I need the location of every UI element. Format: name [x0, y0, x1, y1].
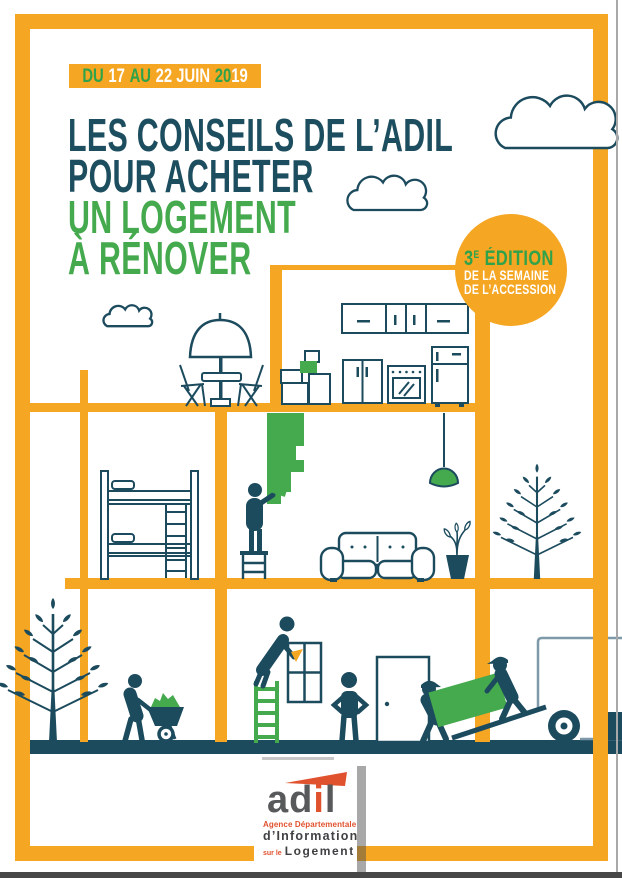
- kitchen: [342, 304, 468, 407]
- ladder-figure: [256, 617, 321, 744]
- beam-top-thin: [276, 265, 458, 270]
- date-badge-text: DU 17 AU 22 JUIN 20 19: [82, 67, 247, 86]
- green-box-small: [300, 361, 317, 373]
- wheelbarrow-load: [151, 693, 180, 707]
- ground: [30, 740, 622, 754]
- potted-plant: [443, 521, 472, 579]
- logo-subline-1: Agence Départementale: [263, 820, 356, 829]
- pendant-lamp: [430, 413, 458, 487]
- umbrella-base: [211, 399, 230, 406]
- logo-wordmark: adil: [267, 781, 336, 819]
- pillow-bottom: [112, 534, 134, 542]
- door-knob: [385, 702, 389, 706]
- date-seg: 17: [108, 67, 124, 86]
- date-badge: DU 17 AU 22 JUIN 20 19: [69, 64, 261, 88]
- cap-right-mover: [487, 657, 508, 664]
- fridge: [432, 347, 468, 407]
- edition-line-3: DE L’ACCESSION: [464, 283, 556, 297]
- terrace-umbrella-table: [180, 313, 263, 406]
- date-seg: 19: [231, 67, 247, 86]
- logo-plate-shadow: [357, 766, 366, 878]
- poster-page: DU 17 AU 22 JUIN 20 19 LES CONSEILS DE L…: [0, 0, 622, 878]
- edition-line-2: DE LA SEMAINE: [464, 269, 556, 283]
- chair-right: [238, 365, 263, 406]
- stove: [388, 366, 425, 403]
- beam-floor-upper: [30, 403, 490, 412]
- screenshot-bottom-edge: [0, 872, 622, 878]
- screenshot-right-edge: [616, 0, 618, 872]
- standing-figure: [334, 672, 366, 741]
- date-seg: AU: [130, 67, 151, 86]
- table: [202, 373, 241, 381]
- edition-line-1: 3E ÉDITION: [464, 245, 556, 269]
- adil-logo: adil Agence Départementale d’Information…: [254, 760, 357, 878]
- cloud-medium: [347, 176, 427, 210]
- plant-pot: [446, 555, 469, 579]
- tree-right: [492, 464, 582, 579]
- bed-ladder: [166, 504, 186, 578]
- logo-plate-shadow-top: [262, 757, 334, 760]
- logo-subline-2: d’Information: [263, 829, 358, 843]
- chair-left: [180, 365, 205, 406]
- wheelbarrow-figure: [125, 674, 184, 741]
- beam-v3: [80, 370, 88, 742]
- beam-v4: [215, 412, 227, 742]
- sofa: [321, 533, 434, 582]
- date-seg: DU: [82, 67, 103, 86]
- stool: [240, 551, 268, 555]
- logo-subline-3: sur le Logement: [263, 844, 355, 858]
- green-ladder: [256, 681, 277, 743]
- cloud-large: [496, 96, 618, 148]
- umbrella-canopy: [190, 320, 251, 357]
- bunk-bed: [101, 471, 198, 579]
- moving-boxes: [281, 351, 330, 404]
- title-line-4: À RÉNOVER: [68, 235, 251, 281]
- cloud-small: [103, 305, 152, 326]
- edition-badge: 3E ÉDITION DE LA SEMAINE DE L’ACCESSION: [455, 214, 567, 326]
- date-seg: 20: [215, 67, 231, 86]
- beam-v1: [270, 265, 282, 412]
- pillow-top: [112, 481, 134, 489]
- moving-truck: [538, 638, 622, 742]
- date-seg: 22 JUIN: [156, 67, 210, 86]
